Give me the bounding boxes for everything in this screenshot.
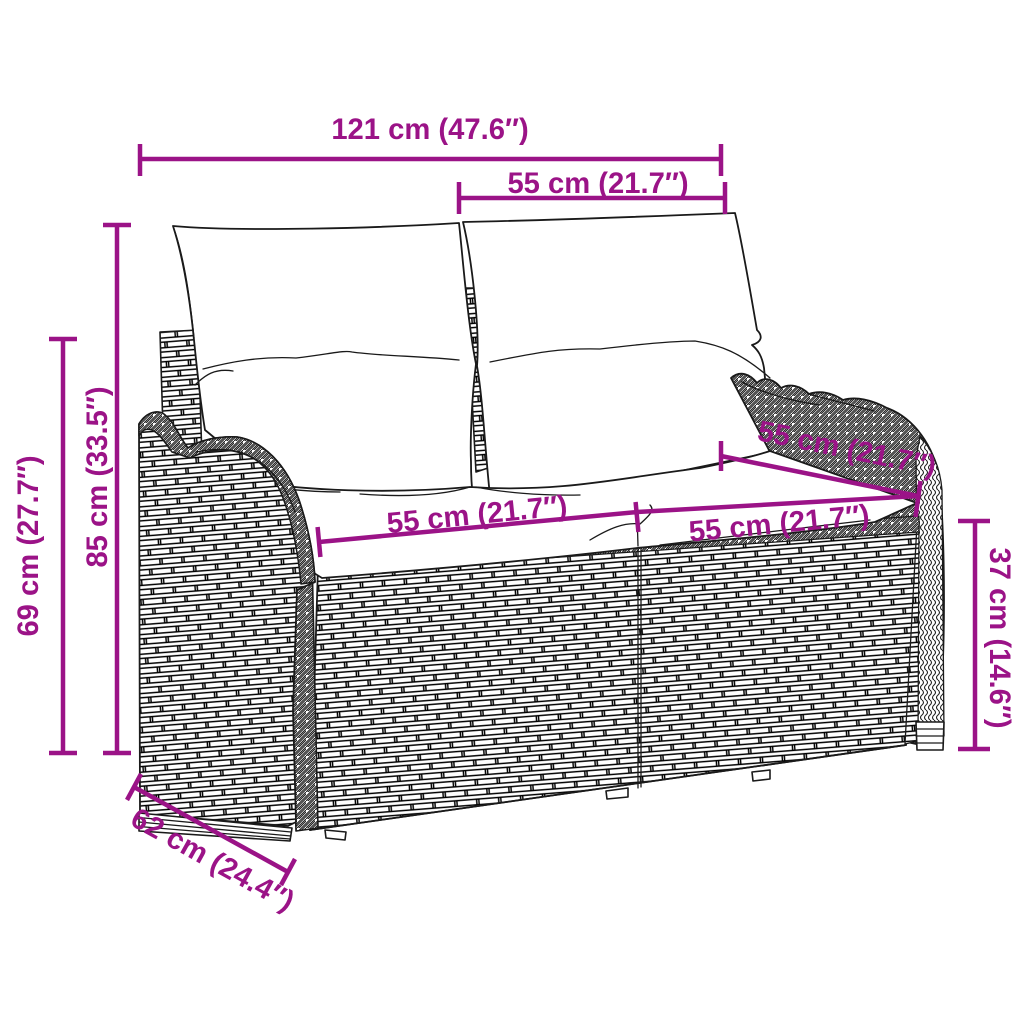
- svg-text:55 cm (21.7″): 55 cm (21.7″): [507, 168, 688, 200]
- svg-text:69 cm (27.7″): 69 cm (27.7″): [13, 455, 45, 636]
- svg-text:121 cm (47.6″): 121 cm (47.6″): [331, 114, 528, 146]
- svg-text:37 cm (14.6″): 37 cm (14.6″): [983, 547, 1015, 728]
- svg-text:85 cm (33.5″): 85 cm (33.5″): [82, 386, 114, 567]
